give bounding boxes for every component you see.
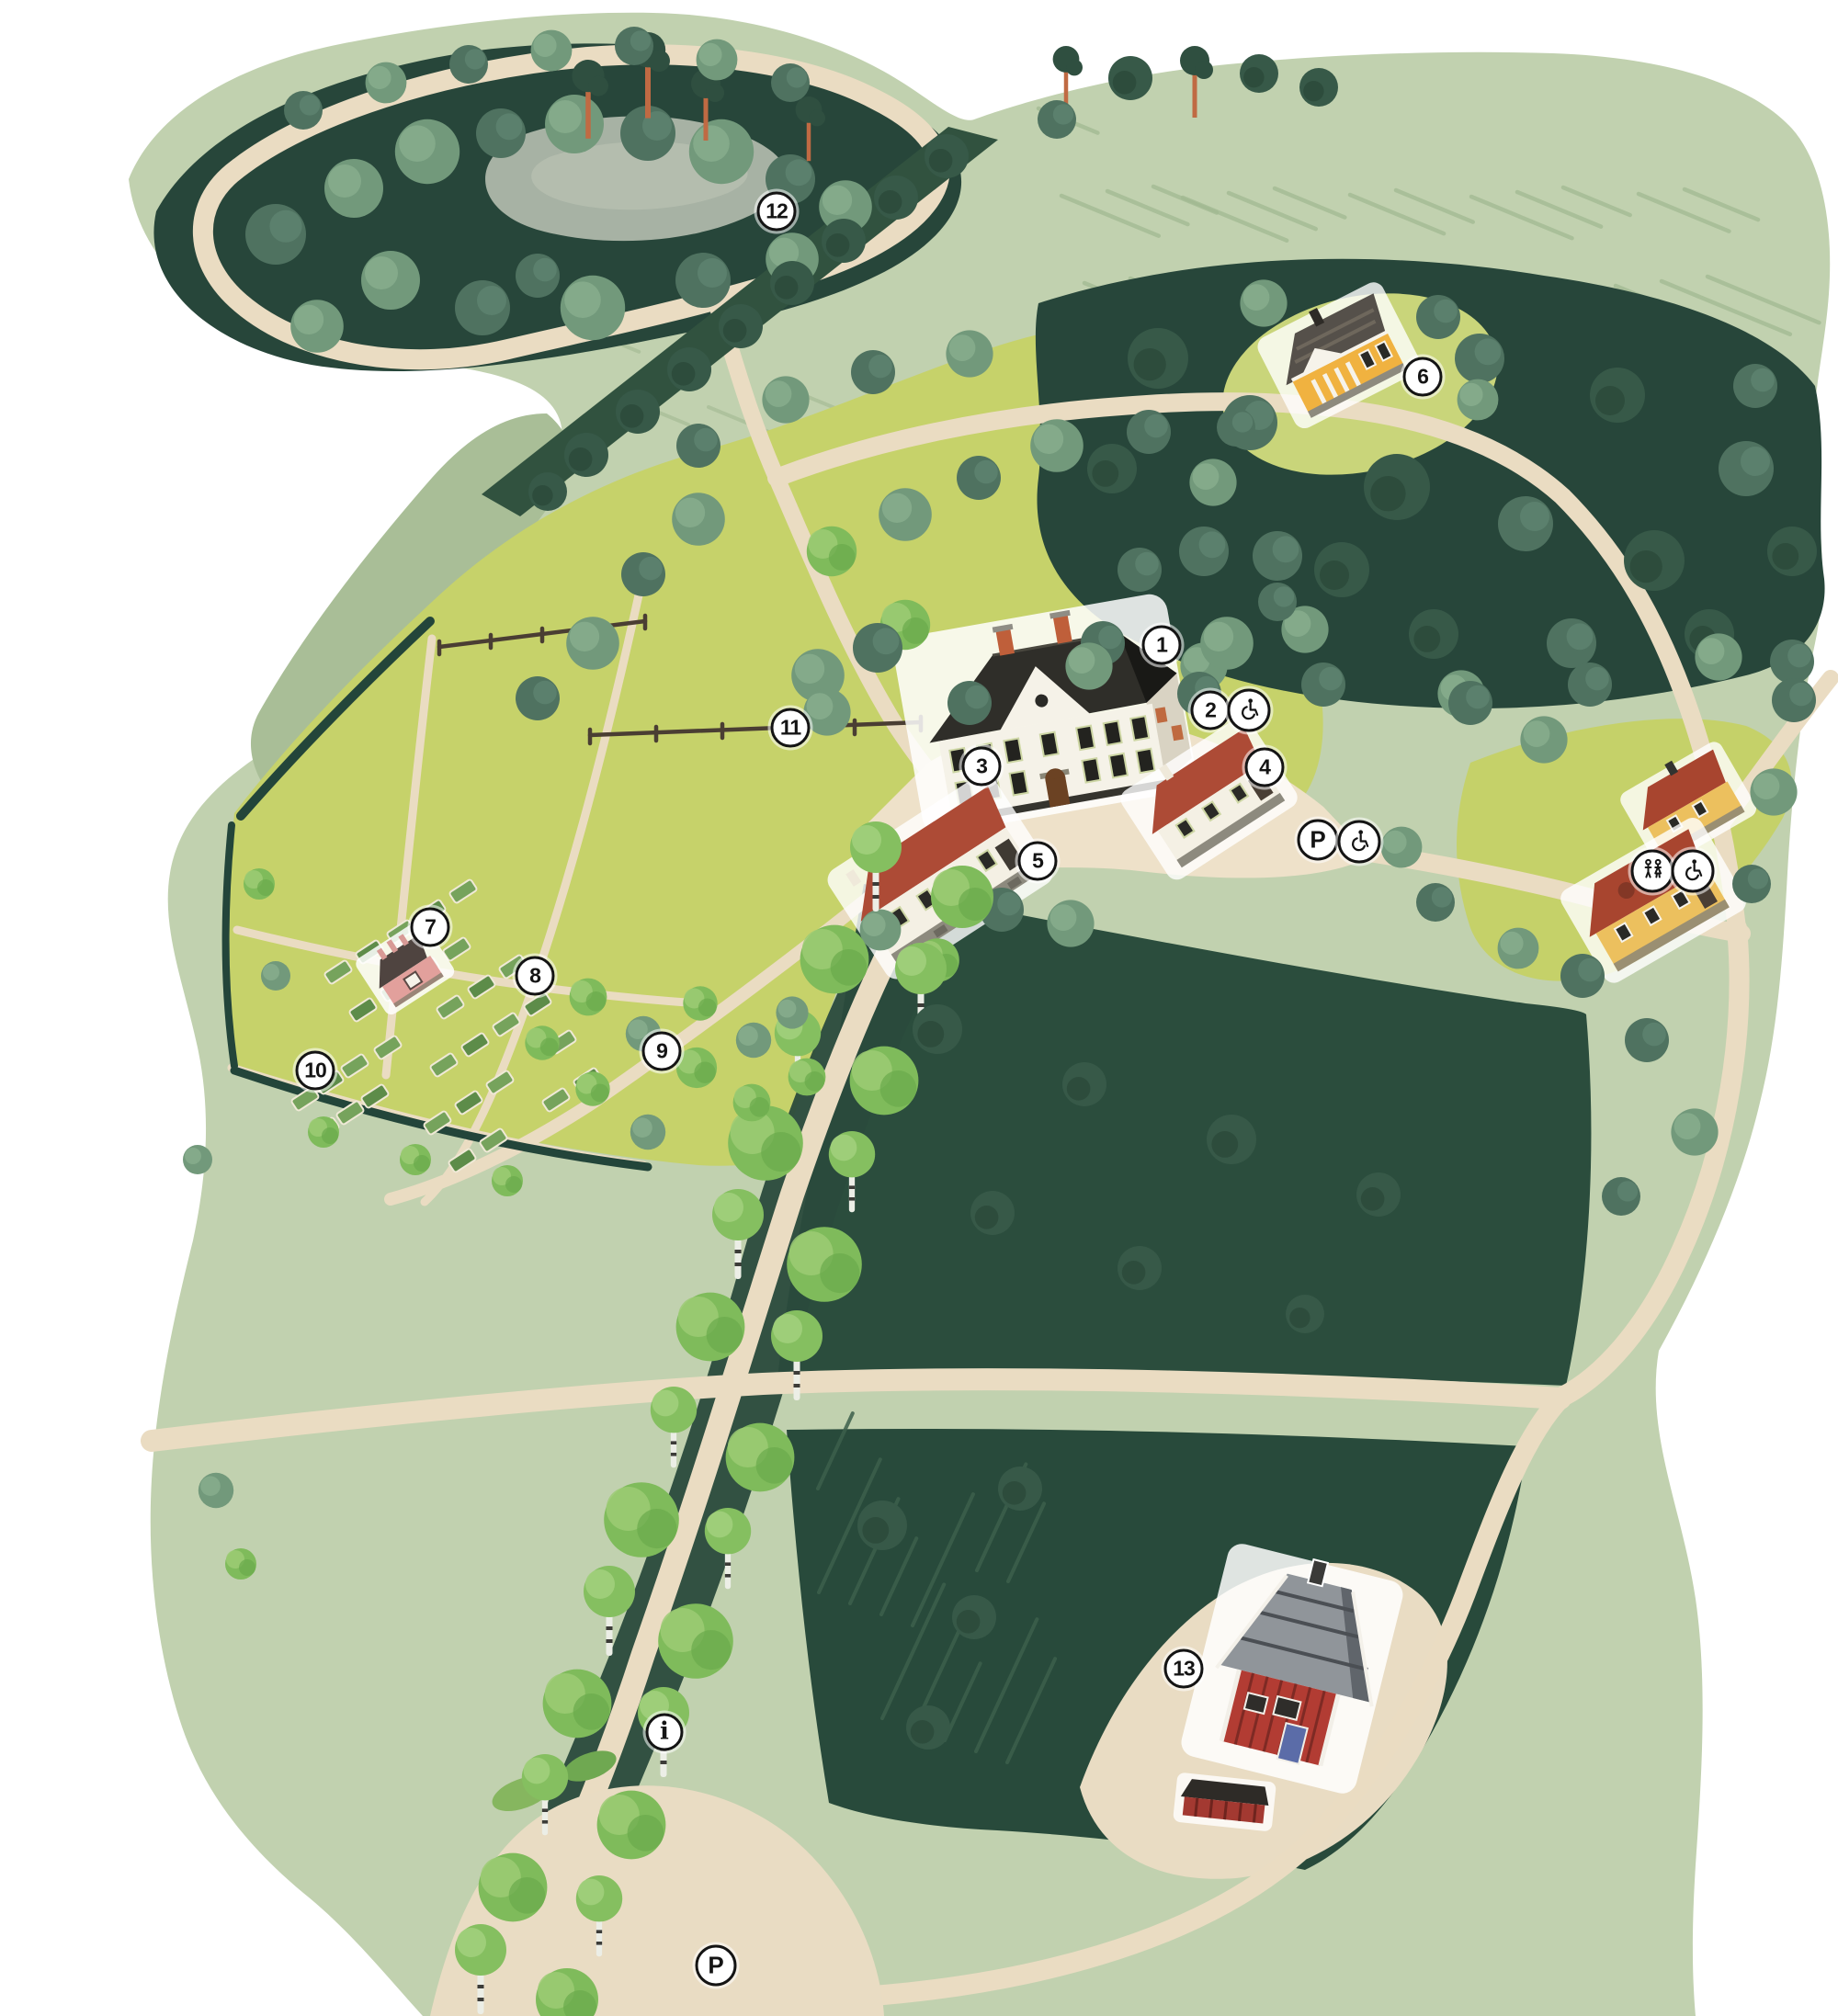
- marker-2-label: 2: [1205, 697, 1216, 722]
- wheelchair-icon: [1346, 829, 1372, 855]
- estate-map-illustration: [0, 0, 1838, 2016]
- marker-8[interactable]: 8: [516, 956, 555, 995]
- marker-11-label: 11: [780, 716, 800, 741]
- marker-parking-south-label: P: [708, 1952, 723, 1980]
- marker-1[interactable]: 1: [1142, 626, 1182, 665]
- marker-toilets[interactable]: [1631, 849, 1674, 892]
- marker-10[interactable]: 10: [296, 1051, 335, 1091]
- marker-5-label: 5: [1032, 848, 1043, 873]
- marker-5[interactable]: 5: [1018, 841, 1058, 880]
- wc-icon: [1639, 857, 1666, 885]
- marker-4-label: 4: [1259, 754, 1270, 779]
- marker-parking-south[interactable]: P: [696, 1945, 737, 1987]
- marker-13-label: 13: [1173, 1656, 1195, 1681]
- farm-outbuilding: [1173, 1772, 1276, 1832]
- marker-2[interactable]: 2: [1191, 690, 1231, 730]
- map-stage: 12345678910111213PiP: [0, 0, 1838, 2016]
- marker-parking-main[interactable]: P: [1298, 819, 1339, 860]
- marker-9-label: 9: [656, 1039, 667, 1064]
- marker-accessible-parking[interactable]: [1338, 820, 1381, 863]
- marker-6[interactable]: 6: [1403, 357, 1443, 397]
- marker-info[interactable]: i: [646, 1713, 684, 1750]
- marker-accessible-toilets[interactable]: [1672, 849, 1715, 892]
- marker-13[interactable]: 13: [1164, 1648, 1204, 1688]
- marker-accessible-entrance[interactable]: [1228, 688, 1271, 731]
- marker-1-label: 1: [1156, 633, 1167, 658]
- marker-9[interactable]: 9: [642, 1032, 682, 1071]
- marker-10-label: 10: [304, 1059, 326, 1083]
- marker-12[interactable]: 12: [757, 192, 797, 232]
- marker-12-label: 12: [766, 199, 788, 224]
- marker-8-label: 8: [529, 963, 540, 988]
- marker-11[interactable]: 11: [771, 708, 811, 748]
- marker-3[interactable]: 3: [962, 746, 1002, 786]
- marker-parking-main-label: P: [1310, 825, 1325, 854]
- marker-7-label: 7: [425, 915, 436, 940]
- wheelchair-icon: [1680, 858, 1706, 884]
- marker-6-label: 6: [1417, 365, 1428, 390]
- wheelchair-icon: [1236, 697, 1262, 723]
- marker-7[interactable]: 7: [411, 908, 450, 947]
- marker-4[interactable]: 4: [1245, 747, 1285, 787]
- marker-3-label: 3: [976, 753, 987, 778]
- marker-info-label: i: [660, 1718, 669, 1746]
